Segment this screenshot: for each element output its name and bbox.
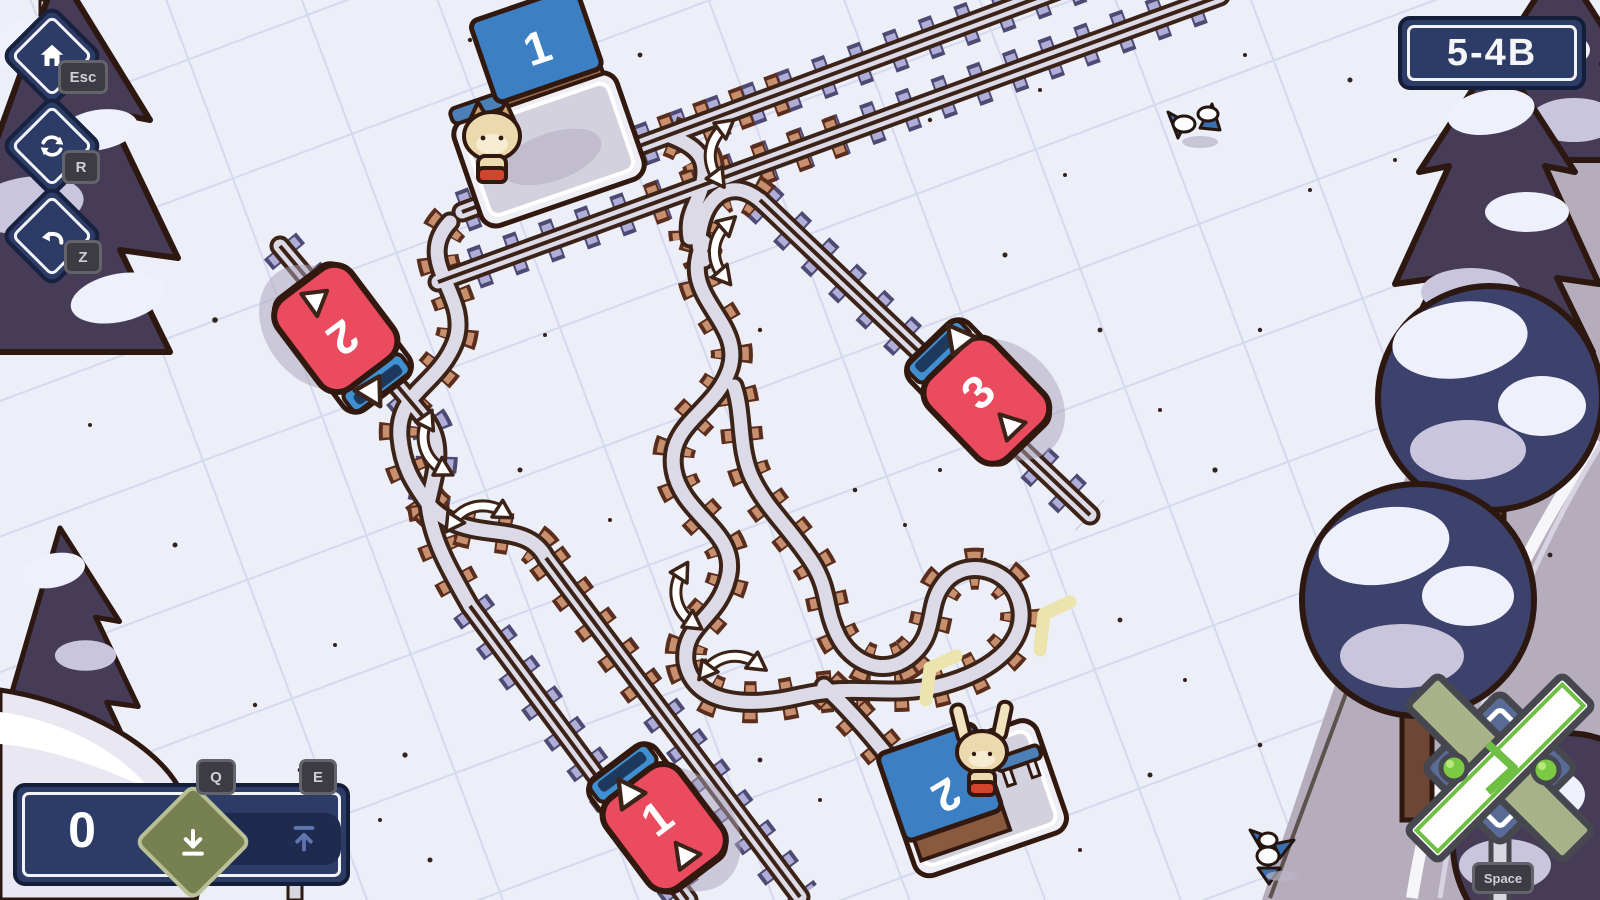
junction-arrow[interactable] [669,562,702,632]
game-screen: 1 2 [0,0,1600,900]
undo-keyhint: Z [64,240,102,274]
remove-keyhint: E [299,759,337,795]
restart-keyhint: R [62,150,100,184]
level-badge: 5-4B [1398,16,1586,90]
crossing-light [1533,757,1559,783]
place-track-icon [155,804,231,880]
level-scene: 1 2 [0,0,1600,900]
home-keyhint: Esc [58,60,108,94]
level-badge-text: 5-4B [1407,25,1577,81]
crossing-light [1441,755,1467,781]
station-2: 2 [877,701,1071,880]
remove-track-icon [285,819,323,864]
place-keyhint: Q [196,759,236,795]
bird-top-right [1168,104,1220,148]
junction-arrow[interactable] [696,651,766,679]
track-counter-panel: 0 [13,783,350,886]
crossing-keyhint: Space [1472,862,1534,894]
track-counter-value: 0 [47,801,117,859]
